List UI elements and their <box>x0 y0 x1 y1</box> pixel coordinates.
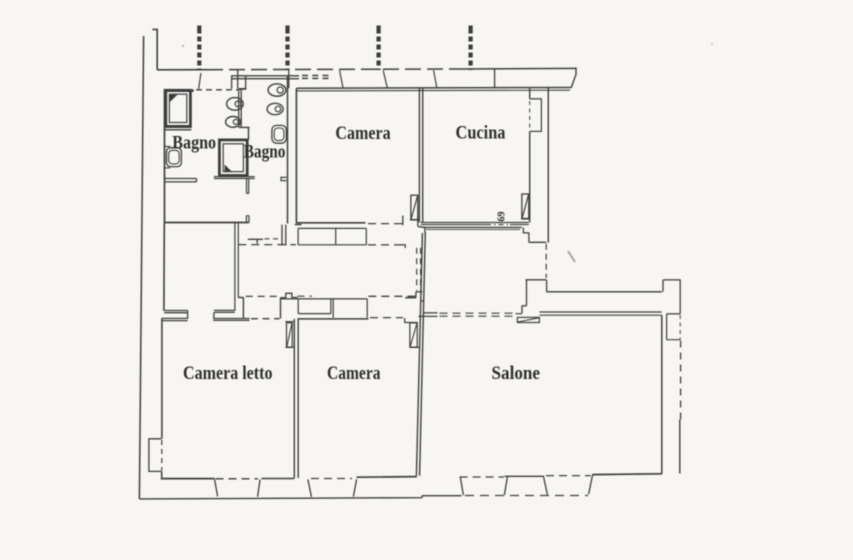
svg-text:Bagno: Bagno <box>172 132 216 153</box>
svg-text:Camera: Camera <box>335 123 391 144</box>
svg-text:Cucina: Cucina <box>456 122 506 143</box>
svg-text:Camera letto: Camera letto <box>183 363 273 384</box>
svg-text:Camera: Camera <box>327 363 381 384</box>
svg-text:69: 69 <box>497 212 508 222</box>
svg-text:Bagno: Bagno <box>244 141 286 162</box>
svg-text:Salone: Salone <box>492 363 541 384</box>
